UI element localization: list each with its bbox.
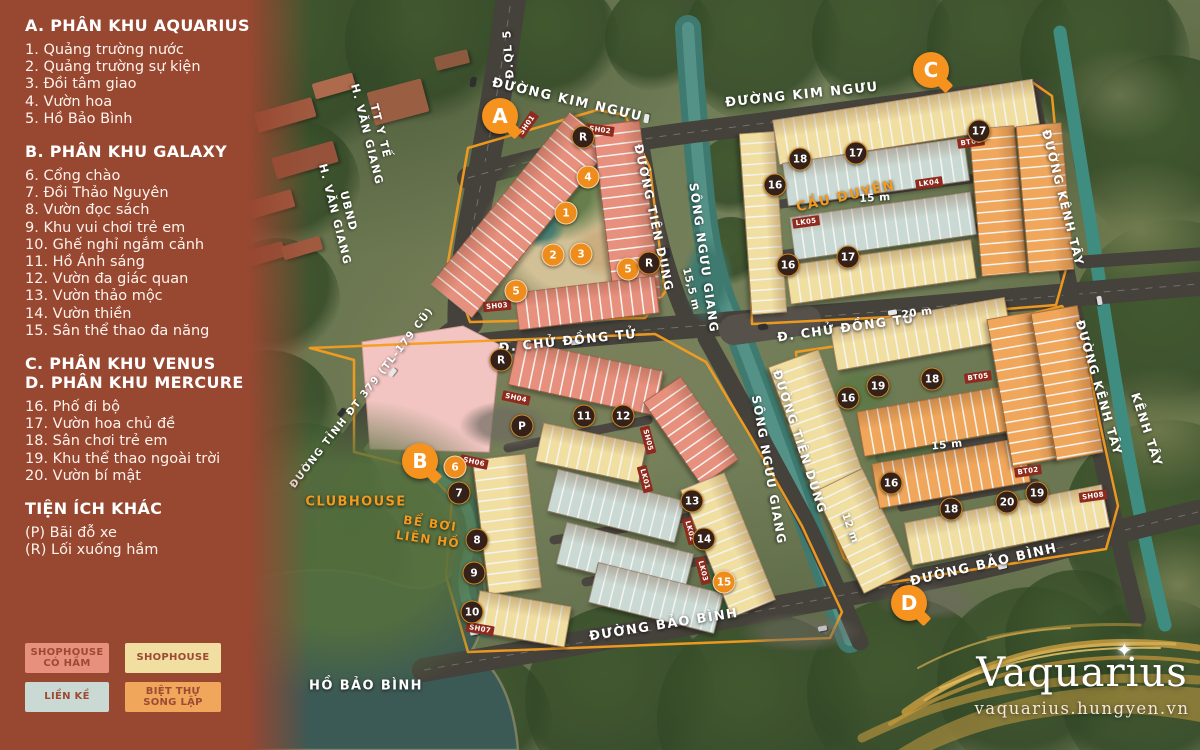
road [1082,254,1200,262]
area-label: CLUBHOUSE [305,495,406,512]
amenity-marker-r: R [572,126,595,149]
legend-item: 9. Khu vui chơi trẻ em [25,220,312,237]
amenity-marker-4: 4 [577,166,600,189]
legend-item: 11. Hồ Ánh sáng [25,254,312,271]
amenity-marker-10: 10 [461,601,484,624]
amenity-marker-15: 15 [713,571,736,594]
legend-item: 20. Vườn bí mật [25,468,312,485]
legend-item: 8. Vườn đọc sách [25,202,312,219]
amenity-marker-18: 18 [789,148,812,171]
amenity-marker-17: 17 [837,246,860,269]
amenity-marker-16: 16 [777,254,800,277]
section-items: 1. Quảng trường nước2. Quảng trường sự k… [25,42,312,128]
amenity-marker-17: 17 [968,120,991,143]
amenity-marker-18: 18 [940,498,963,521]
dimension-label: 15 m [859,191,891,205]
amenity-marker-14: 14 [693,528,716,551]
amenity-marker-2: 2 [542,244,565,267]
legend-swatches: SHOPHOUSE CÓ HẦMSHOPHOUSELIỀN KỀBIỆT THỰ… [25,643,221,712]
legend-item: 3. Đồi tâm giao [25,76,312,93]
legend-item: 4. Vườn hoa [25,94,312,111]
car [817,625,827,632]
legend-item: 2. Quảng trường sự kiện [25,59,312,76]
amenity-marker-9: 9 [463,562,486,585]
legend-section: B. PHÂN KHU GALAXY6. Cổng chào7. Đồi Thả… [25,142,312,340]
zone-marker-c: C [913,52,949,88]
legend-item: 6. Cổng chào [25,168,312,185]
amenity-marker-8: 8 [466,529,489,552]
zone-marker-b: B [402,443,438,479]
section-items: (P) Bãi đỗ xe(R) Lối xuống hầm [25,525,312,559]
legend-item: 1. Quảng trường nước [25,42,312,59]
ground-patch [459,401,551,449]
car [1096,295,1102,305]
legend-item: 16. Phố đi bộ [25,399,312,416]
legend-sidebar: A. PHÂN KHU AQUARIUS1. Quảng trường nước… [0,0,312,750]
legend-swatch-sh: SHOPHOUSE [125,643,221,673]
amenity-marker-6: 6 [444,456,467,479]
amenity-marker-19: 19 [867,375,890,398]
section-items: 6. Cổng chào7. Đồi Thảo Nguyên8. Vườn đọ… [25,168,312,340]
amenity-marker-19: 19 [1026,482,1049,505]
area-label: HỒ BẢO BÌNH [309,679,423,696]
amenity-marker-18: 18 [921,368,944,391]
amenity-marker-1: 1 [555,202,578,225]
legend-section: A. PHÂN KHU AQUARIUS1. Quảng trường nước… [25,16,312,128]
legend-item: (P) Bãi đỗ xe [25,525,312,542]
section-items: 16. Phố đi bộ17. Vườn hoa chủ đề18. Sân … [25,399,312,485]
zone-marker-d: D [891,585,927,621]
legend-item: 19. Khu thể thao ngoài trời [25,451,312,468]
car [757,323,767,329]
amenity-marker-7: 7 [448,482,471,505]
car [469,77,475,87]
legend-swatch-sh_ham: SHOPHOUSE CÓ HẦM [25,643,109,673]
legend-item: 14. Vườn thiền [25,306,312,323]
masterplan-canvas: SH01SH02SH03SH04SH05SH06SH07LK01LK02LK03… [0,0,1200,750]
legend-item: 18. Sân chơi trẻ em [25,433,312,450]
amenity-marker-17: 17 [845,142,868,165]
legend-item: 12. Vườn đa giác quan [25,271,312,288]
brand-name: Vaquarius [968,650,1196,696]
amenity-marker-3: 3 [570,243,593,266]
amenity-marker-11: 11 [573,405,596,428]
legend-item: 17. Vườn hoa chủ đề [25,416,312,433]
legend-item: 7. Đồi Thảo Nguyên [25,185,312,202]
amenity-marker-16: 16 [764,174,787,197]
amenity-marker-12: 12 [612,405,635,428]
sidebar-sections: A. PHÂN KHU AQUARIUS1. Quảng trường nước… [25,16,312,559]
section-title: TIỆN ÍCH KHÁC [25,499,312,518]
ground-patch [738,612,862,652]
amenity-marker-p: P [511,415,534,438]
legend-item: (R) Lối xuống hầm [25,542,312,559]
section-title: D. PHÂN KHU MERCURE [25,373,312,392]
legend-item: 5. Hồ Bảo Bình [25,111,312,128]
brand-website: vaquarius.hungyen.vn [968,699,1196,718]
brand-logo: ✦ Vaquarius vaquarius.hungyen.vn [968,650,1196,718]
legend-section: TIỆN ÍCH KHÁC(P) Bãi đỗ xe(R) Lối xuống … [25,499,312,559]
zone-marker-a: A [482,98,518,134]
amenity-marker-r: R [490,349,513,372]
amenity-marker-20: 20 [996,491,1019,514]
section-title: C. PHÂN KHU VENUS [25,354,312,373]
amenity-marker-5: 5 [505,280,528,303]
amenity-marker-5: 5 [617,258,640,281]
legend-item: 10. Ghế nghỉ ngắm cảnh [25,237,312,254]
legend-section: C. PHÂN KHU VENUSD. PHÂN KHU MERCURE16. … [25,354,312,485]
section-title: B. PHÂN KHU GALAXY [25,142,312,161]
legend-swatch-lk: LIỀN KỀ [25,682,109,712]
gold-brush-stroke [988,625,1140,638]
amenity-marker-16: 16 [880,472,903,495]
sparkle-icon: ✦ [1116,638,1133,662]
amenity-marker-r: R [638,252,661,275]
amenity-marker-16: 16 [837,387,860,410]
car [643,113,649,123]
legend-item: 13. Vườn thảo mộc [25,288,312,305]
section-title: A. PHÂN KHU AQUARIUS [25,16,312,35]
amenity-marker-13: 13 [681,490,704,513]
legend-item: 15. Sân thể thao đa năng [25,323,312,340]
legend-swatch-bt: BIỆT THỰ SONG LẬP [125,682,221,712]
